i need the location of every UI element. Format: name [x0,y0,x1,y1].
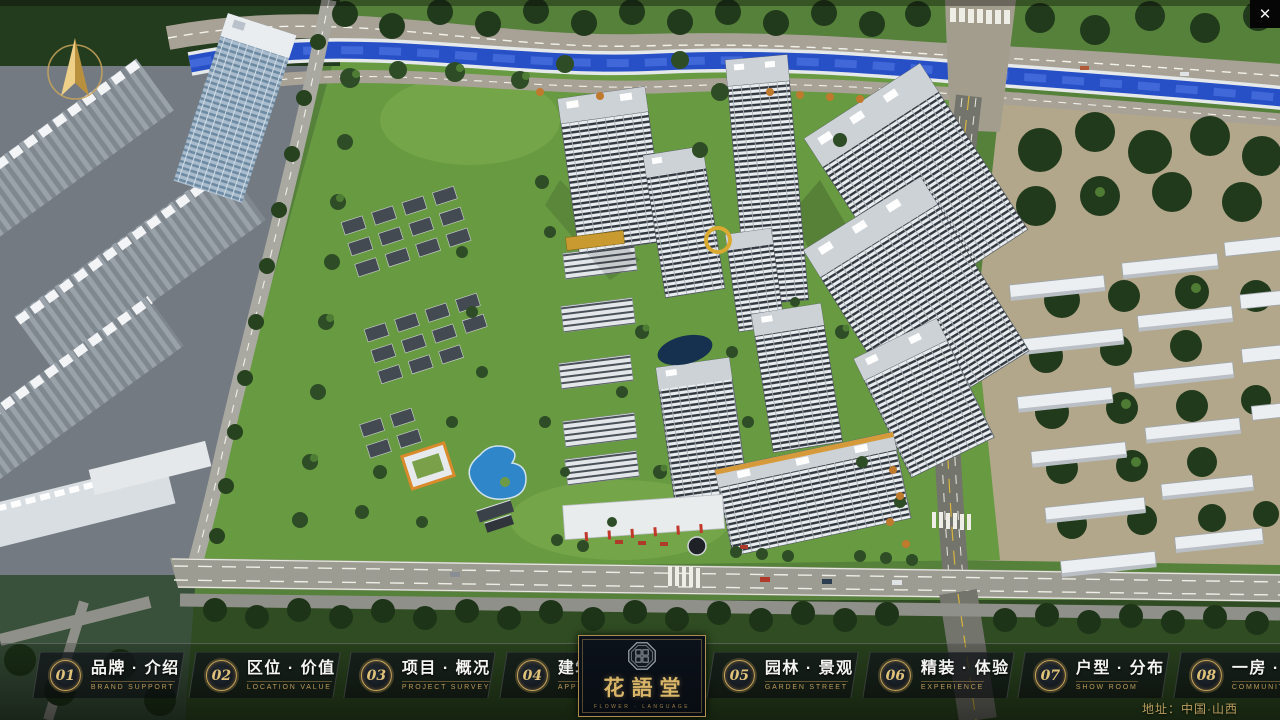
nav-group-left: 01 品牌 · 介绍BRAND SUPPORT 02 区位 · 价值LOCATI… [36,652,572,698]
brand-title: 花語堂 [597,672,688,702]
aerial-masterplan-render [0,0,1280,720]
address-text: 地址：中国·山西 [1142,700,1238,717]
nav-number-badge: 04 [517,660,548,691]
nav-number-badge: 08 [1191,660,1222,691]
nav-number-badge: 06 [880,660,911,691]
nav-number-badge: 03 [361,660,392,691]
close-button[interactable]: ✕ [1250,0,1280,28]
nav-number-badge: 05 [724,660,755,691]
nav-item-location-value[interactable]: 02 区位 · 价值LOCATION VALUE [188,652,340,698]
nav-group-right: 05 园林 · 景观GARDEN STREET 06 精装 · 体验EXPERI… [710,652,1244,698]
nav-item-brand-intro[interactable]: 01 品牌 · 介绍BRAND SUPPORT [32,652,184,698]
nav-number-badge: 01 [50,660,81,691]
brand-logo-card[interactable]: 花語堂 FLOWER · LANGUAGE [578,635,706,717]
nav-item-interior-experience[interactable]: 06 精装 · 体验EXPERIENCE [862,652,1014,698]
nav-item-project-overview[interactable]: 03 项目 · 概况PROJECT SURVEY [344,652,496,698]
brand-seal-icon [627,641,657,671]
nav-item-unit-layout[interactable]: 07 户型 · 分布SHOW ROOM [1018,652,1170,698]
nav-item-room-view[interactable]: 08 一房 · 一景COMMUNITY [1174,652,1280,698]
brand-subtitle: FLOWER · LANGUAGE [594,704,690,710]
nav-number-badge: 02 [206,660,237,691]
nav-item-landscape[interactable]: 05 园林 · 景观GARDEN STREET [706,652,858,698]
presentation-stage: ✕ 01 品牌 · 介绍BRAND SUPPORT 02 区位 · 价值LOCA… [0,0,1280,720]
nav-number-badge: 07 [1035,660,1066,691]
